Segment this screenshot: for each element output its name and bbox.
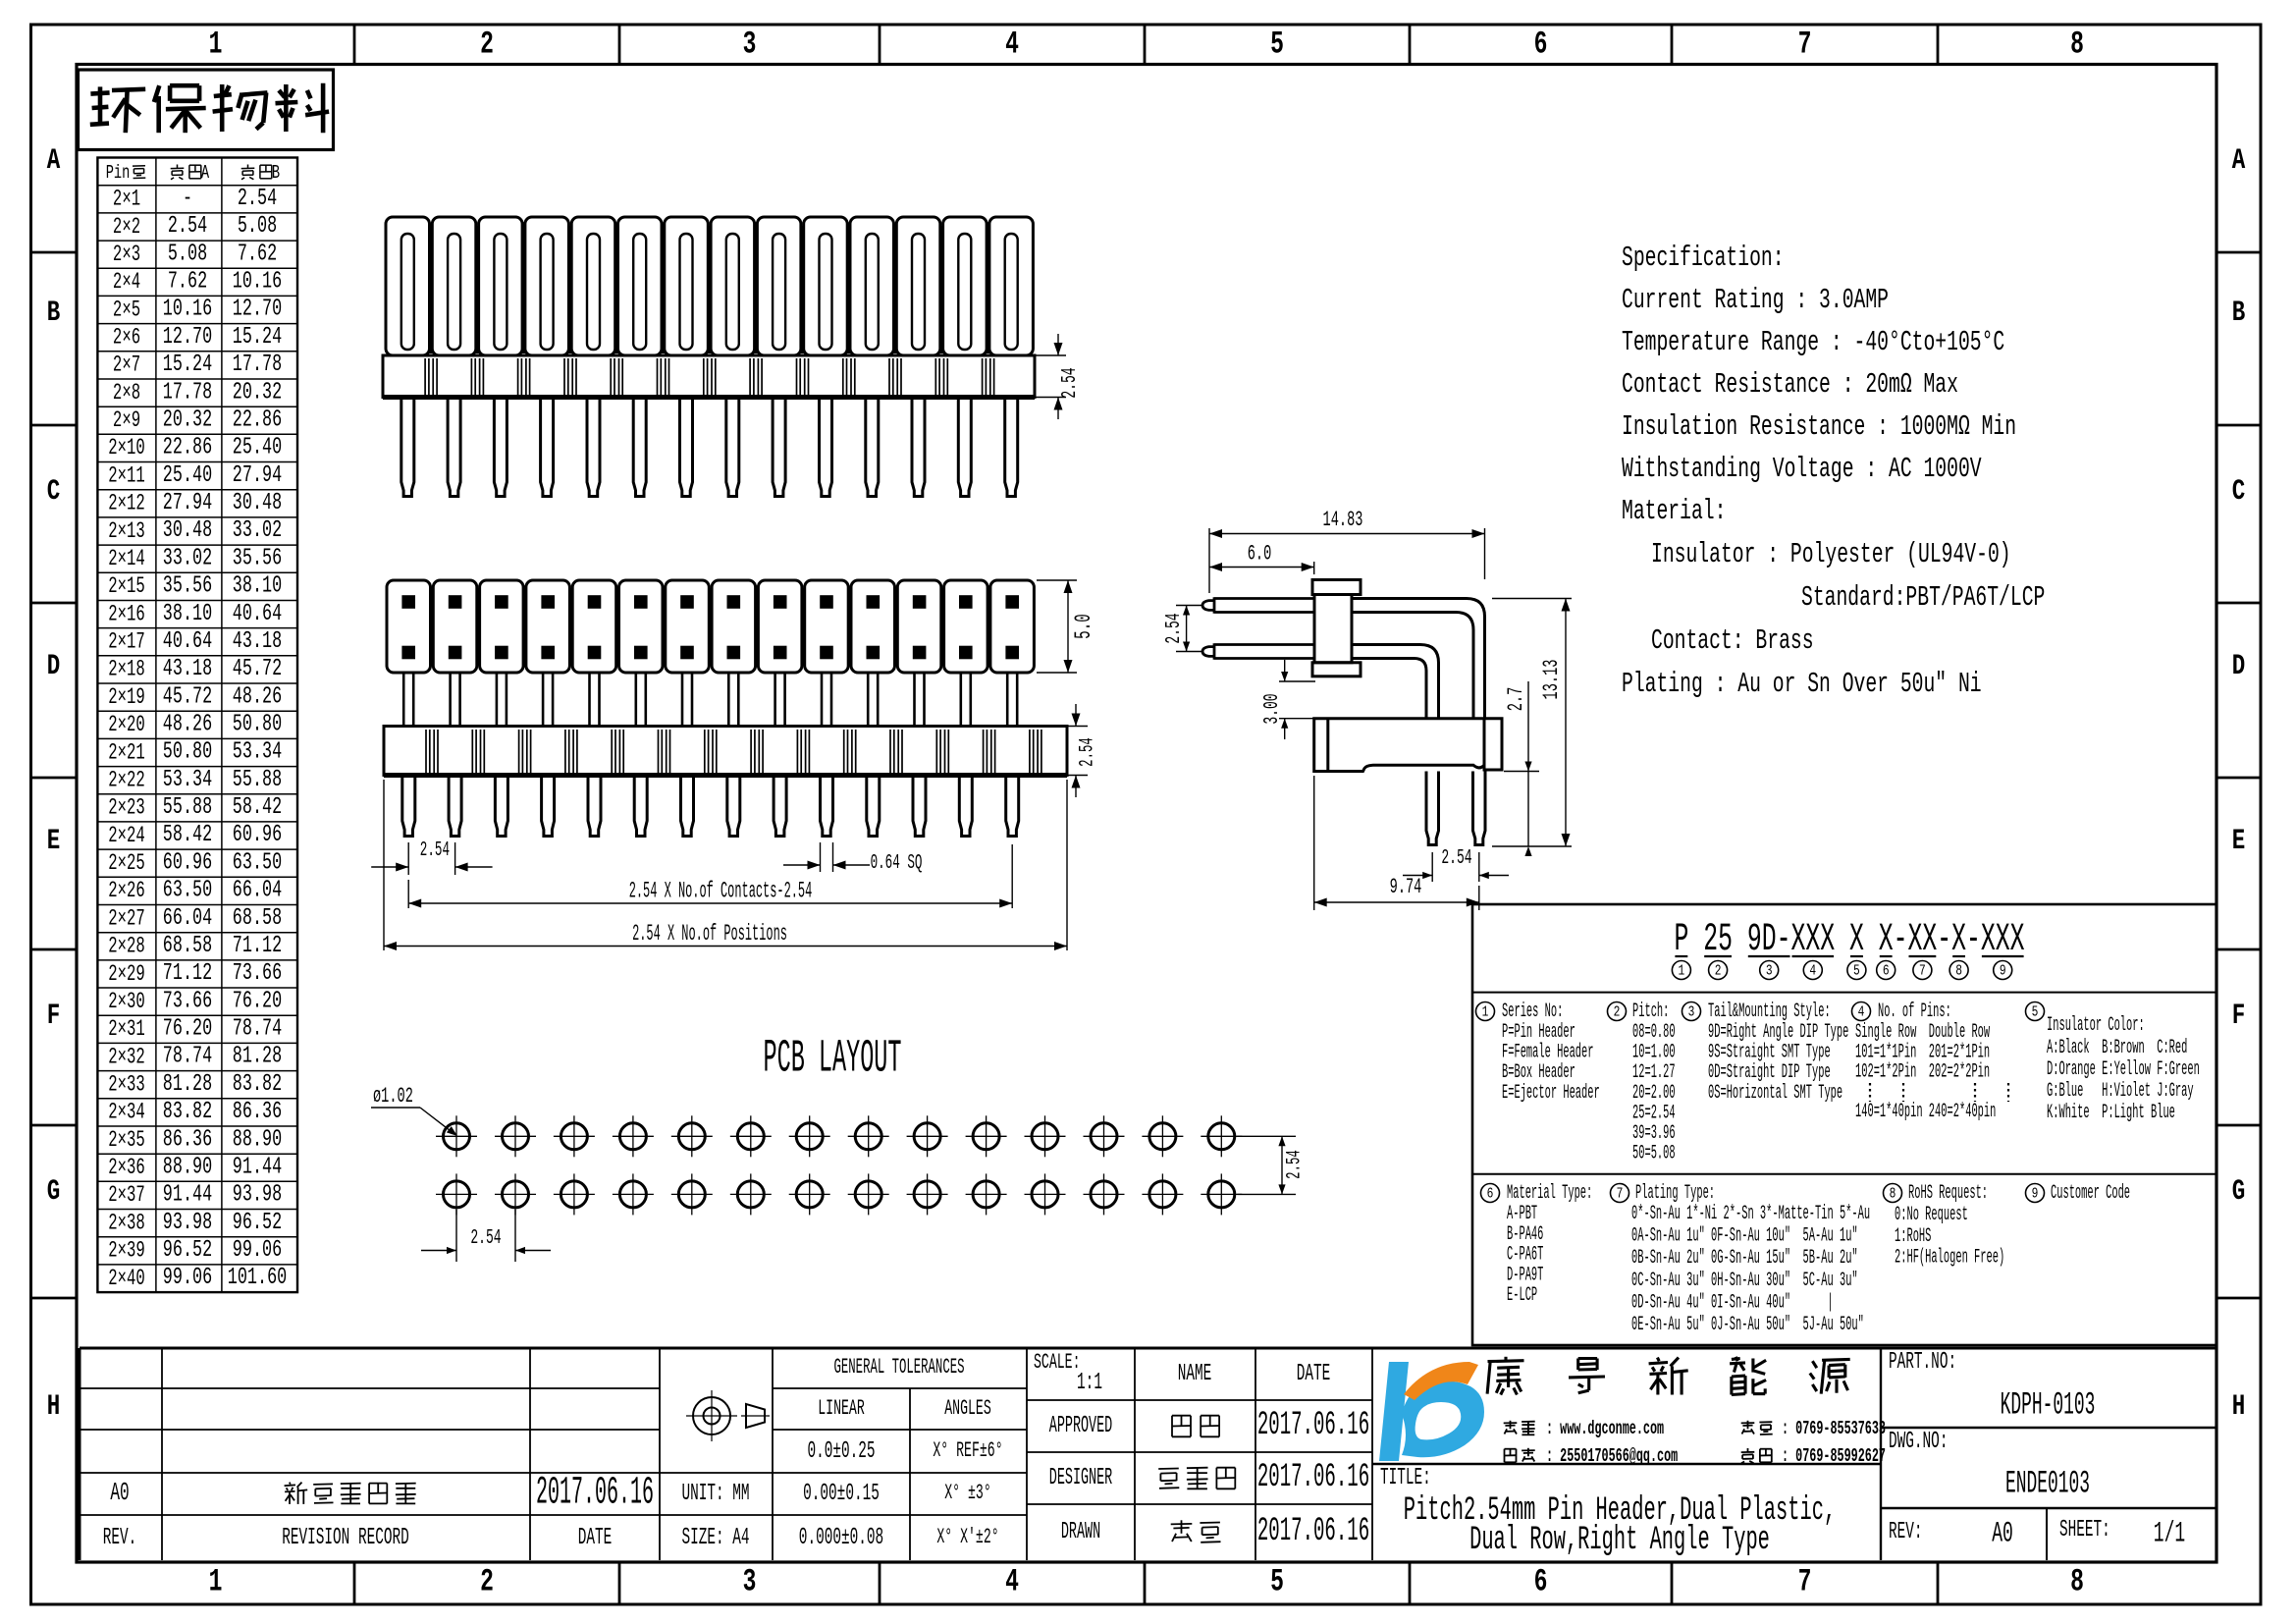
svg-text:9: 9: [2032, 1185, 2039, 1202]
svg-text:2×29: 2×29: [108, 961, 145, 987]
svg-text:2×26: 2×26: [108, 879, 145, 904]
svg-text:Plating : Au or Sn Over 50u" N: Plating : Au or Sn Over 50u" Ni: [1622, 669, 1982, 701]
svg-text:33.02: 33.02: [163, 546, 212, 572]
svg-text:A: A: [201, 162, 209, 184]
svg-text:2×9: 2×9: [113, 407, 140, 433]
svg-text:15.24: 15.24: [233, 324, 282, 351]
svg-text:2×16: 2×16: [108, 602, 145, 627]
svg-text:8: 8: [1890, 1185, 1896, 1202]
svg-text:2.54: 2.54: [168, 214, 207, 241]
svg-text:0D=Straight DIP Type: 0D=Straight DIP Type: [1708, 1061, 1831, 1084]
svg-text:27.94: 27.94: [163, 490, 212, 516]
svg-text:2×35: 2×35: [108, 1127, 145, 1153]
svg-text:Tail&Mounting Style:: Tail&Mounting Style:: [1708, 1001, 1831, 1023]
svg-text:Temperature Range : -40°Cto+10: Temperature Range : -40°Cto+105°C: [1622, 327, 2004, 359]
svg-text:3: 3: [743, 1565, 757, 1600]
svg-text:83.82: 83.82: [163, 1100, 212, 1126]
svg-text:0*-Sn-Au 1*-Ni 2*-Sn 3*-Matte-: 0*-Sn-Au 1*-Ni 2*-Sn 3*-Matte-Tin 5*-Au: [1631, 1203, 1870, 1225]
svg-text:No. of Pins:: No. of Pins:: [1878, 1001, 1951, 1023]
svg-text:2×31: 2×31: [108, 1016, 145, 1042]
svg-text:Withstanding Voltage : AC 1000: Withstanding Voltage : AC 1000V: [1622, 454, 1982, 486]
svg-text:88.90: 88.90: [163, 1155, 212, 1181]
svg-text:1: 1: [209, 27, 223, 63]
svg-text:G: G: [2232, 1174, 2245, 1208]
svg-text:TITLE:: TITLE:: [1380, 1465, 1431, 1491]
svg-text:93.98: 93.98: [163, 1210, 212, 1236]
svg-text:53.34: 53.34: [163, 767, 212, 793]
svg-text:GENERAL TOLERANCES: GENERAL TOLERANCES: [834, 1356, 965, 1380]
svg-text:102=1*2Pin 202=2*2Pin: 102=1*2Pin 202=2*2Pin: [1855, 1060, 1990, 1083]
svg-text:PART.NO:: PART.NO:: [1889, 1349, 1956, 1376]
svg-text:33.02: 33.02: [233, 518, 282, 545]
svg-text:SHEET:: SHEET:: [2059, 1517, 2110, 1543]
svg-text:G: G: [47, 1174, 60, 1208]
svg-text:7: 7: [1798, 27, 1812, 63]
svg-text:2: 2: [1715, 962, 1722, 979]
svg-text:0D-Sn-Au 4u" 0I-Sn-Au 40u": 0D-Sn-Au 4u" 0I-Sn-Au 40u" |: [1631, 1291, 1834, 1314]
svg-text:E-LCP: E-LCP: [1507, 1284, 1537, 1307]
svg-text:5.0: 5.0: [1071, 614, 1096, 639]
svg-text:A:Black B:Brown C:Red: A:Black B:Brown C:Red: [2047, 1037, 2187, 1059]
svg-text:45.72: 45.72: [233, 657, 282, 683]
svg-text:55.88: 55.88: [163, 794, 212, 821]
svg-text:25.40: 25.40: [163, 462, 212, 489]
svg-text:REV.: REV.: [103, 1525, 137, 1551]
svg-text:1:RoHS: 1:RoHS: [1895, 1225, 1931, 1248]
svg-text:G:Blue H:Violet J:Gray: G:Blue H:Violet J:Gray: [2047, 1080, 2194, 1103]
svg-text:DRAWN: DRAWN: [1061, 1518, 1100, 1544]
svg-text:101.60: 101.60: [228, 1266, 287, 1292]
svg-text:48.26: 48.26: [163, 712, 212, 738]
svg-text:30.48: 30.48: [233, 490, 282, 516]
svg-text:14.83: 14.83: [1323, 509, 1363, 532]
svg-text:83.82: 83.82: [233, 1071, 282, 1098]
svg-text:KDPH-0103: KDPH-0103: [2001, 1386, 2096, 1423]
svg-text:78.74: 78.74: [233, 1016, 282, 1043]
svg-text:C: C: [47, 474, 61, 508]
svg-text:38.10: 38.10: [233, 573, 282, 600]
svg-text:50=5.08: 50=5.08: [1632, 1142, 1676, 1164]
svg-text:40.64: 40.64: [233, 601, 282, 627]
svg-text:6.0: 6.0: [1248, 542, 1272, 566]
svg-text:DWG.NO:: DWG.NO:: [1889, 1429, 1948, 1455]
svg-text:9S=Straight SMT Type: 9S=Straight SMT Type: [1708, 1041, 1831, 1063]
svg-text:DATE: DATE: [578, 1525, 613, 1551]
svg-text:F=Female Header: F=Female Header: [1502, 1041, 1594, 1063]
svg-text:DATE: DATE: [1297, 1361, 1331, 1387]
svg-text:7: 7: [1617, 1185, 1624, 1202]
svg-text:K:White P:Light Blue: K:White P:Light Blue: [2047, 1102, 2175, 1124]
svg-text:6: 6: [1487, 1185, 1494, 1202]
svg-text:9.74: 9.74: [1390, 876, 1422, 899]
svg-text:-: -: [183, 186, 192, 212]
svg-text:43.18: 43.18: [233, 628, 282, 655]
svg-text:68.58: 68.58: [163, 933, 212, 959]
svg-text:6: 6: [1534, 27, 1548, 63]
svg-text:81.28: 81.28: [233, 1044, 282, 1070]
svg-text:2×28: 2×28: [108, 934, 145, 959]
svg-text:B-PA46: B-PA46: [1507, 1223, 1543, 1246]
svg-text:99.06: 99.06: [233, 1237, 282, 1264]
svg-text:A0: A0: [110, 1480, 129, 1508]
svg-text:Current Rating : 3.0AMP: Current Rating : 3.0AMP: [1622, 285, 1889, 317]
svg-text:2×20: 2×20: [108, 712, 145, 737]
svg-text:2×30: 2×30: [108, 989, 145, 1014]
svg-text:93.98: 93.98: [233, 1182, 282, 1209]
svg-text:63.50: 63.50: [163, 878, 212, 904]
svg-text:D-PA9T: D-PA9T: [1507, 1264, 1543, 1286]
svg-text:LINEAR: LINEAR: [818, 1397, 865, 1421]
svg-text:Contact: Brass: Contact: Brass: [1651, 625, 1814, 658]
svg-text:2017.06.16: 2017.06.16: [536, 1472, 654, 1515]
svg-text:5: 5: [1853, 962, 1860, 979]
svg-text:66.04: 66.04: [233, 878, 282, 904]
svg-text:60.96: 60.96: [233, 823, 282, 849]
svg-text:2×11: 2×11: [108, 463, 145, 489]
svg-text:20.32: 20.32: [163, 407, 212, 434]
svg-text:0.00±0.15: 0.00±0.15: [803, 1481, 880, 1507]
svg-text:RoHS Request:: RoHS Request:: [1908, 1182, 1988, 1205]
svg-text:86.36: 86.36: [163, 1127, 212, 1154]
svg-text:20=2.00: 20=2.00: [1632, 1082, 1676, 1105]
svg-text:Material:: Material:: [1622, 496, 1726, 528]
svg-text:7: 7: [1919, 962, 1926, 979]
svg-text:7: 7: [1798, 1565, 1812, 1600]
svg-text:71.12: 71.12: [163, 961, 212, 988]
svg-text:Contact Resistance : 20mΩ Max: Contact Resistance : 20mΩ Max: [1622, 369, 1958, 402]
svg-text:F: F: [47, 999, 60, 1032]
svg-text:76.20: 76.20: [163, 1016, 212, 1043]
svg-text:Pin: Pin: [106, 162, 131, 184]
svg-text:ANGLES: ANGLES: [944, 1397, 990, 1421]
svg-text:2×13: 2×13: [108, 518, 145, 544]
svg-text:38.10: 38.10: [163, 601, 212, 627]
svg-text:7.62: 7.62: [168, 269, 207, 296]
svg-text:2.54 X No.of Positions: 2.54 X No.of Positions: [632, 921, 787, 947]
svg-text:17.78: 17.78: [163, 380, 212, 406]
svg-text:3: 3: [1688, 1003, 1695, 1020]
svg-text:C-PA6T: C-PA6T: [1507, 1243, 1543, 1266]
svg-text:6: 6: [1883, 962, 1890, 979]
svg-text:68.58: 68.58: [233, 905, 282, 932]
svg-text:10.16: 10.16: [163, 297, 212, 323]
svg-text:2×8: 2×8: [113, 380, 140, 406]
svg-text:1: 1: [1482, 1003, 1489, 1020]
svg-text:53.34: 53.34: [233, 739, 282, 766]
svg-text:0:No Request: 0:No Request: [1895, 1204, 1968, 1226]
svg-text:B: B: [47, 296, 61, 329]
svg-text:25.40: 25.40: [233, 435, 282, 461]
svg-text:2: 2: [1614, 1003, 1621, 1020]
svg-text:Insulation Resistance : 1000MΩ: Insulation Resistance : 1000MΩ Min: [1622, 411, 2016, 444]
svg-text:Specification:: Specification:: [1622, 243, 1785, 275]
svg-text:86.36: 86.36: [233, 1100, 282, 1126]
svg-text:2.54: 2.54: [1076, 737, 1098, 767]
svg-text:91.44: 91.44: [163, 1182, 212, 1209]
svg-text:8: 8: [2070, 1565, 2084, 1600]
svg-text:0A-Sn-Au 1u" 0F-Sn-Au 10u" 5A: 0A-Sn-Au 1u" 0F-Sn-Au 10u" 5A-Au 1u": [1631, 1224, 1858, 1247]
svg-text:81.28: 81.28: [163, 1071, 212, 1098]
svg-text:2×5: 2×5: [113, 298, 140, 323]
svg-text:Material Type:: Material Type:: [1507, 1182, 1592, 1205]
svg-text:0.64 SQ: 0.64 SQ: [871, 852, 923, 875]
svg-text:4: 4: [1005, 27, 1019, 63]
svg-text:2×23: 2×23: [108, 795, 145, 821]
svg-text:2.7: 2.7: [1505, 687, 1528, 712]
svg-text:45.72: 45.72: [163, 684, 212, 711]
svg-text:12=1.27: 12=1.27: [1632, 1061, 1676, 1084]
svg-text:91.44: 91.44: [233, 1155, 282, 1181]
svg-text:D: D: [2232, 649, 2245, 682]
svg-text:13.13: 13.13: [1540, 660, 1564, 700]
svg-text:2×4: 2×4: [113, 269, 140, 295]
svg-text:73.66: 73.66: [163, 989, 212, 1015]
svg-text:9: 9: [2000, 962, 2006, 979]
svg-text:43.18: 43.18: [163, 657, 212, 683]
svg-text:15.24: 15.24: [163, 352, 212, 379]
svg-text:Dual Row,Right Angle Type: Dual Row,Right Angle Type: [1469, 1522, 1770, 1559]
svg-text:5: 5: [1270, 1565, 1284, 1600]
svg-text:2:HF(Halogen Free): 2:HF(Halogen Free): [1895, 1246, 2004, 1269]
svg-text:22.86: 22.86: [233, 407, 282, 434]
svg-text:Customer Code: Customer Code: [2051, 1182, 2130, 1205]
svg-text:66.04: 66.04: [163, 905, 212, 932]
svg-text:22.86: 22.86: [163, 435, 212, 461]
svg-text:50.80: 50.80: [163, 739, 212, 766]
svg-text:76.20: 76.20: [233, 989, 282, 1015]
svg-text:2.54: 2.54: [1058, 367, 1082, 398]
svg-text:2.54: 2.54: [1283, 1150, 1306, 1179]
svg-text:3: 3: [743, 27, 757, 63]
svg-text:8: 8: [2070, 27, 2084, 63]
svg-text:P=Pin Header: P=Pin Header: [1502, 1021, 1575, 1044]
svg-text:2.54: 2.54: [1162, 613, 1186, 643]
svg-text:0B-Sn-Au 2u" 0G-Sn-Au 15u" 5B: 0B-Sn-Au 2u" 0G-Sn-Au 15u" 5B-Au 2u": [1631, 1247, 1858, 1270]
svg-text:20.32: 20.32: [233, 380, 282, 406]
svg-text:X° X'±2°: X° X'±2°: [936, 1526, 998, 1549]
svg-text:2×19: 2×19: [108, 684, 145, 710]
svg-text:B: B: [272, 162, 280, 184]
svg-text:55.88: 55.88: [233, 767, 282, 793]
svg-text:DESIGNER: DESIGNER: [1049, 1464, 1113, 1490]
svg-text:2.54: 2.54: [238, 186, 277, 212]
svg-text:2×40: 2×40: [108, 1266, 145, 1291]
svg-text:E: E: [2232, 824, 2245, 857]
svg-text:A: A: [2232, 143, 2246, 177]
svg-text:35.56: 35.56: [233, 546, 282, 572]
svg-text:ENDE0103: ENDE0103: [2005, 1465, 2090, 1501]
svg-text:0.000±0.08: 0.000±0.08: [799, 1525, 883, 1551]
svg-text:1:1: 1:1: [1077, 1370, 1102, 1396]
svg-text:X° ±3°: X° ±3°: [944, 1482, 990, 1505]
svg-text:PCB LAYOUT: PCB LAYOUT: [764, 1033, 902, 1085]
svg-text:2×25: 2×25: [108, 850, 145, 876]
svg-text:2×7: 2×7: [113, 352, 140, 378]
svg-text:Single Row Double Row: Single Row Double Row: [1855, 1021, 1990, 1044]
svg-text:08=0.80: 08=0.80: [1632, 1021, 1676, 1044]
svg-text:88.90: 88.90: [233, 1127, 282, 1154]
svg-text:2×18: 2×18: [108, 657, 145, 682]
svg-text:140=1*40pin 240=2*40pin: 140=1*40pin 240=2*40pin: [1855, 1101, 1996, 1123]
svg-text:2×24: 2×24: [108, 823, 145, 848]
svg-text:APPROVED: APPROVED: [1049, 1412, 1112, 1438]
svg-text:X° REF±6°: X° REF±6°: [933, 1439, 1002, 1463]
svg-text:30.48: 30.48: [163, 518, 212, 545]
svg-text:12.70: 12.70: [233, 297, 282, 323]
svg-text:2×32: 2×32: [108, 1045, 145, 1070]
svg-text:2×22: 2×22: [108, 768, 145, 793]
svg-text:2×15: 2×15: [108, 574, 145, 600]
svg-text:2×12: 2×12: [108, 491, 145, 516]
svg-text:2.54: 2.54: [420, 839, 450, 862]
svg-text:D:Orange E:Yellow F:Green: D:Orange E:Yellow F:Green: [2047, 1058, 2200, 1081]
svg-text:2×3: 2×3: [113, 242, 140, 267]
svg-text:35.56: 35.56: [163, 573, 212, 600]
svg-text:58.42: 58.42: [163, 823, 212, 849]
svg-text:: www.dgconme.com: : www.dgconme.com: [1546, 1418, 1664, 1439]
svg-text:2: 2: [480, 27, 494, 63]
svg-text:58.42: 58.42: [233, 794, 282, 821]
svg-text:2×39: 2×39: [108, 1238, 145, 1264]
svg-text:Insulator : Polyester (UL94V-0: Insulator : Polyester (UL94V-0): [1651, 539, 2011, 571]
svg-text:4: 4: [1809, 962, 1816, 979]
svg-text:E=Ejector Header: E=Ejector Header: [1502, 1082, 1600, 1105]
svg-text:99.06: 99.06: [163, 1266, 212, 1292]
svg-text:2×33: 2×33: [108, 1072, 145, 1098]
svg-text:A: A: [47, 143, 61, 177]
svg-text:48.26: 48.26: [233, 684, 282, 711]
svg-text:P 25 9D-XXX X X-XX-X-XXX: P 25 9D-XXX X X-XX-X-XXX: [1674, 916, 2024, 961]
svg-text:25=2.54: 25=2.54: [1632, 1102, 1676, 1124]
svg-text:H: H: [2232, 1389, 2245, 1423]
svg-text:2×2: 2×2: [113, 214, 140, 240]
svg-text:2×21: 2×21: [108, 740, 145, 766]
svg-text:8: 8: [1955, 962, 1962, 979]
svg-text:1: 1: [209, 1565, 223, 1600]
svg-text:96.52: 96.52: [233, 1210, 282, 1236]
svg-text:60.96: 60.96: [163, 850, 212, 877]
svg-text:: 0769-85992627: : 0769-85992627: [1782, 1445, 1886, 1467]
svg-text:63.50: 63.50: [233, 850, 282, 877]
svg-text:ø1.02: ø1.02: [373, 1085, 413, 1109]
svg-text:1: 1: [1679, 962, 1685, 979]
svg-text:2017.06.16: 2017.06.16: [1257, 1459, 1369, 1496]
svg-text:9D=Right Angle DIP Type: 9D=Right Angle DIP Type: [1708, 1021, 1848, 1044]
svg-text:2.54: 2.54: [1441, 846, 1471, 870]
svg-text:17.78: 17.78: [233, 352, 282, 379]
svg-text:F: F: [2232, 999, 2245, 1032]
svg-text:5.08: 5.08: [168, 242, 207, 268]
svg-text:4: 4: [1005, 1565, 1019, 1600]
svg-text:0S=Horizontal SMT Type: 0S=Horizontal SMT Type: [1708, 1082, 1842, 1105]
svg-text:0.0±0.25: 0.0±0.25: [807, 1438, 875, 1465]
svg-text:REVISION RECORD: REVISION RECORD: [282, 1525, 409, 1551]
svg-text:2×37: 2×37: [108, 1183, 145, 1209]
svg-text:2×36: 2×36: [108, 1155, 145, 1180]
svg-text:REV:: REV:: [1889, 1519, 1923, 1545]
svg-text:50.80: 50.80: [233, 712, 282, 738]
svg-text:2×10: 2×10: [108, 436, 145, 461]
svg-text:: 0769-85537633: : 0769-85537633: [1782, 1418, 1886, 1439]
svg-text:5: 5: [2032, 1003, 2039, 1020]
svg-text:71.12: 71.12: [233, 933, 282, 959]
svg-text:2: 2: [480, 1565, 494, 1600]
svg-text:3: 3: [1766, 962, 1773, 979]
svg-text:2×14: 2×14: [108, 546, 145, 571]
svg-text:27.94: 27.94: [233, 462, 282, 489]
svg-text:3.00: 3.00: [1260, 693, 1284, 724]
svg-text:B: B: [2232, 296, 2246, 329]
svg-text:6: 6: [1534, 1565, 1548, 1600]
svg-text:SCALE:: SCALE:: [1034, 1351, 1080, 1375]
svg-text:40.64: 40.64: [163, 628, 212, 655]
svg-text:UNIT: MM: UNIT: MM: [681, 1481, 749, 1507]
svg-text:2×27: 2×27: [108, 906, 145, 932]
svg-text:2×38: 2×38: [108, 1211, 145, 1236]
svg-text:C: C: [2232, 474, 2246, 508]
svg-text:73.66: 73.66: [233, 961, 282, 988]
svg-text:E: E: [47, 824, 60, 857]
svg-text:2×6: 2×6: [113, 325, 140, 351]
svg-text:Plating Type:: Plating Type:: [1635, 1182, 1715, 1205]
svg-text:4: 4: [1858, 1003, 1865, 1020]
svg-text:5.08: 5.08: [238, 214, 277, 241]
svg-text:96.52: 96.52: [163, 1237, 212, 1264]
svg-text:2.54: 2.54: [470, 1226, 501, 1250]
svg-text:12.70: 12.70: [163, 324, 212, 351]
svg-text:1/1: 1/1: [2154, 1517, 2185, 1550]
svg-text:2×17: 2×17: [108, 629, 145, 655]
svg-text:2×1: 2×1: [113, 187, 140, 212]
svg-text:7.62: 7.62: [238, 242, 277, 268]
svg-text:Pitch:: Pitch:: [1632, 1001, 1669, 1023]
svg-text:0E-Sn-Au 5u" 0J-Sn-Au 50u" 5J: 0E-Sn-Au 5u" 0J-Sn-Au 50u" 5J-Au 50u": [1631, 1314, 1864, 1336]
svg-text:10.16: 10.16: [233, 269, 282, 296]
svg-text:Series No:: Series No:: [1502, 1001, 1563, 1023]
svg-text:5: 5: [1270, 27, 1284, 63]
svg-text:78.74: 78.74: [163, 1044, 212, 1070]
svg-text:2017.06.16: 2017.06.16: [1257, 1513, 1369, 1550]
svg-text:D: D: [47, 649, 60, 682]
svg-text:NAME: NAME: [1178, 1361, 1212, 1387]
svg-text:Standard:PBT/PA6T/LCP: Standard:PBT/PA6T/LCP: [1801, 582, 2045, 615]
svg-text:A-PBT: A-PBT: [1507, 1203, 1537, 1225]
svg-text:H: H: [47, 1389, 60, 1423]
svg-text:2.54 X No.of Contacts-2.54: 2.54 X No.of Contacts-2.54: [629, 879, 813, 904]
svg-text:: 2550170566@qq.com: : 2550170566@qq.com: [1546, 1445, 1678, 1467]
svg-text:SIZE: A4: SIZE: A4: [681, 1525, 749, 1551]
svg-text:Insulator Color:: Insulator Color:: [2047, 1014, 2145, 1037]
svg-text:2017.06.16: 2017.06.16: [1257, 1407, 1369, 1444]
svg-text:2×34: 2×34: [108, 1100, 145, 1125]
svg-text:39=3.96: 39=3.96: [1632, 1122, 1676, 1145]
svg-text:B=Box Header: B=Box Header: [1502, 1061, 1575, 1084]
svg-text:0C-Sn-Au 3u" 0H-Sn-Au 30u" 5C: 0C-Sn-Au 3u" 0H-Sn-Au 30u" 5C-Au 3u": [1631, 1270, 1858, 1292]
svg-text:10=1.00: 10=1.00: [1632, 1041, 1676, 1063]
svg-text:A0: A0: [1992, 1517, 2013, 1550]
